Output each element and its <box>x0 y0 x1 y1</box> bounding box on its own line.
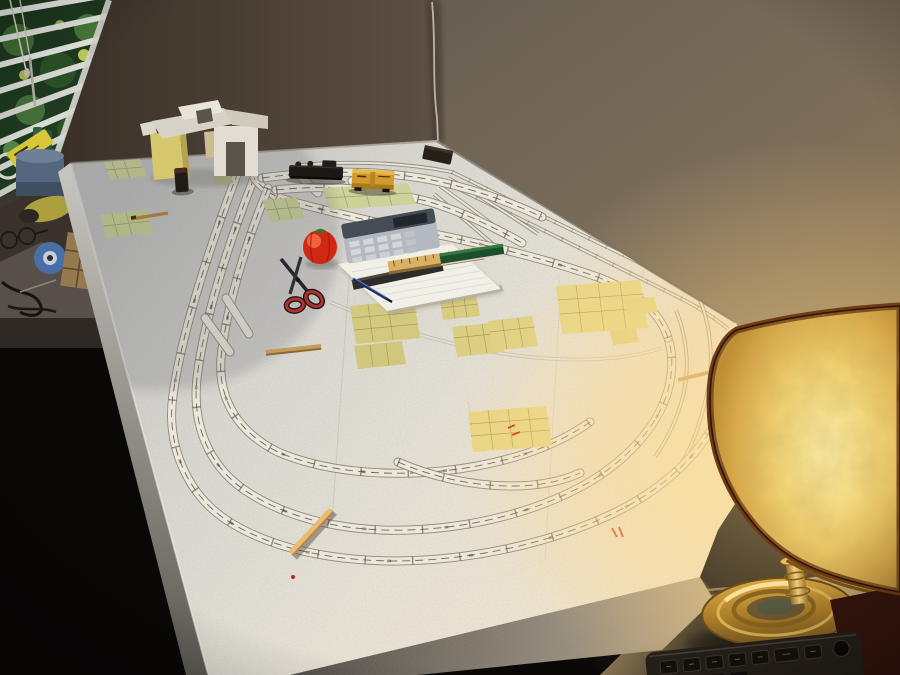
photo-stage: Model railroad track planning on a foam … <box>0 0 900 675</box>
scene-photo: Model railroad track planning on a foam … <box>0 0 900 675</box>
photo-vignette <box>0 0 900 675</box>
